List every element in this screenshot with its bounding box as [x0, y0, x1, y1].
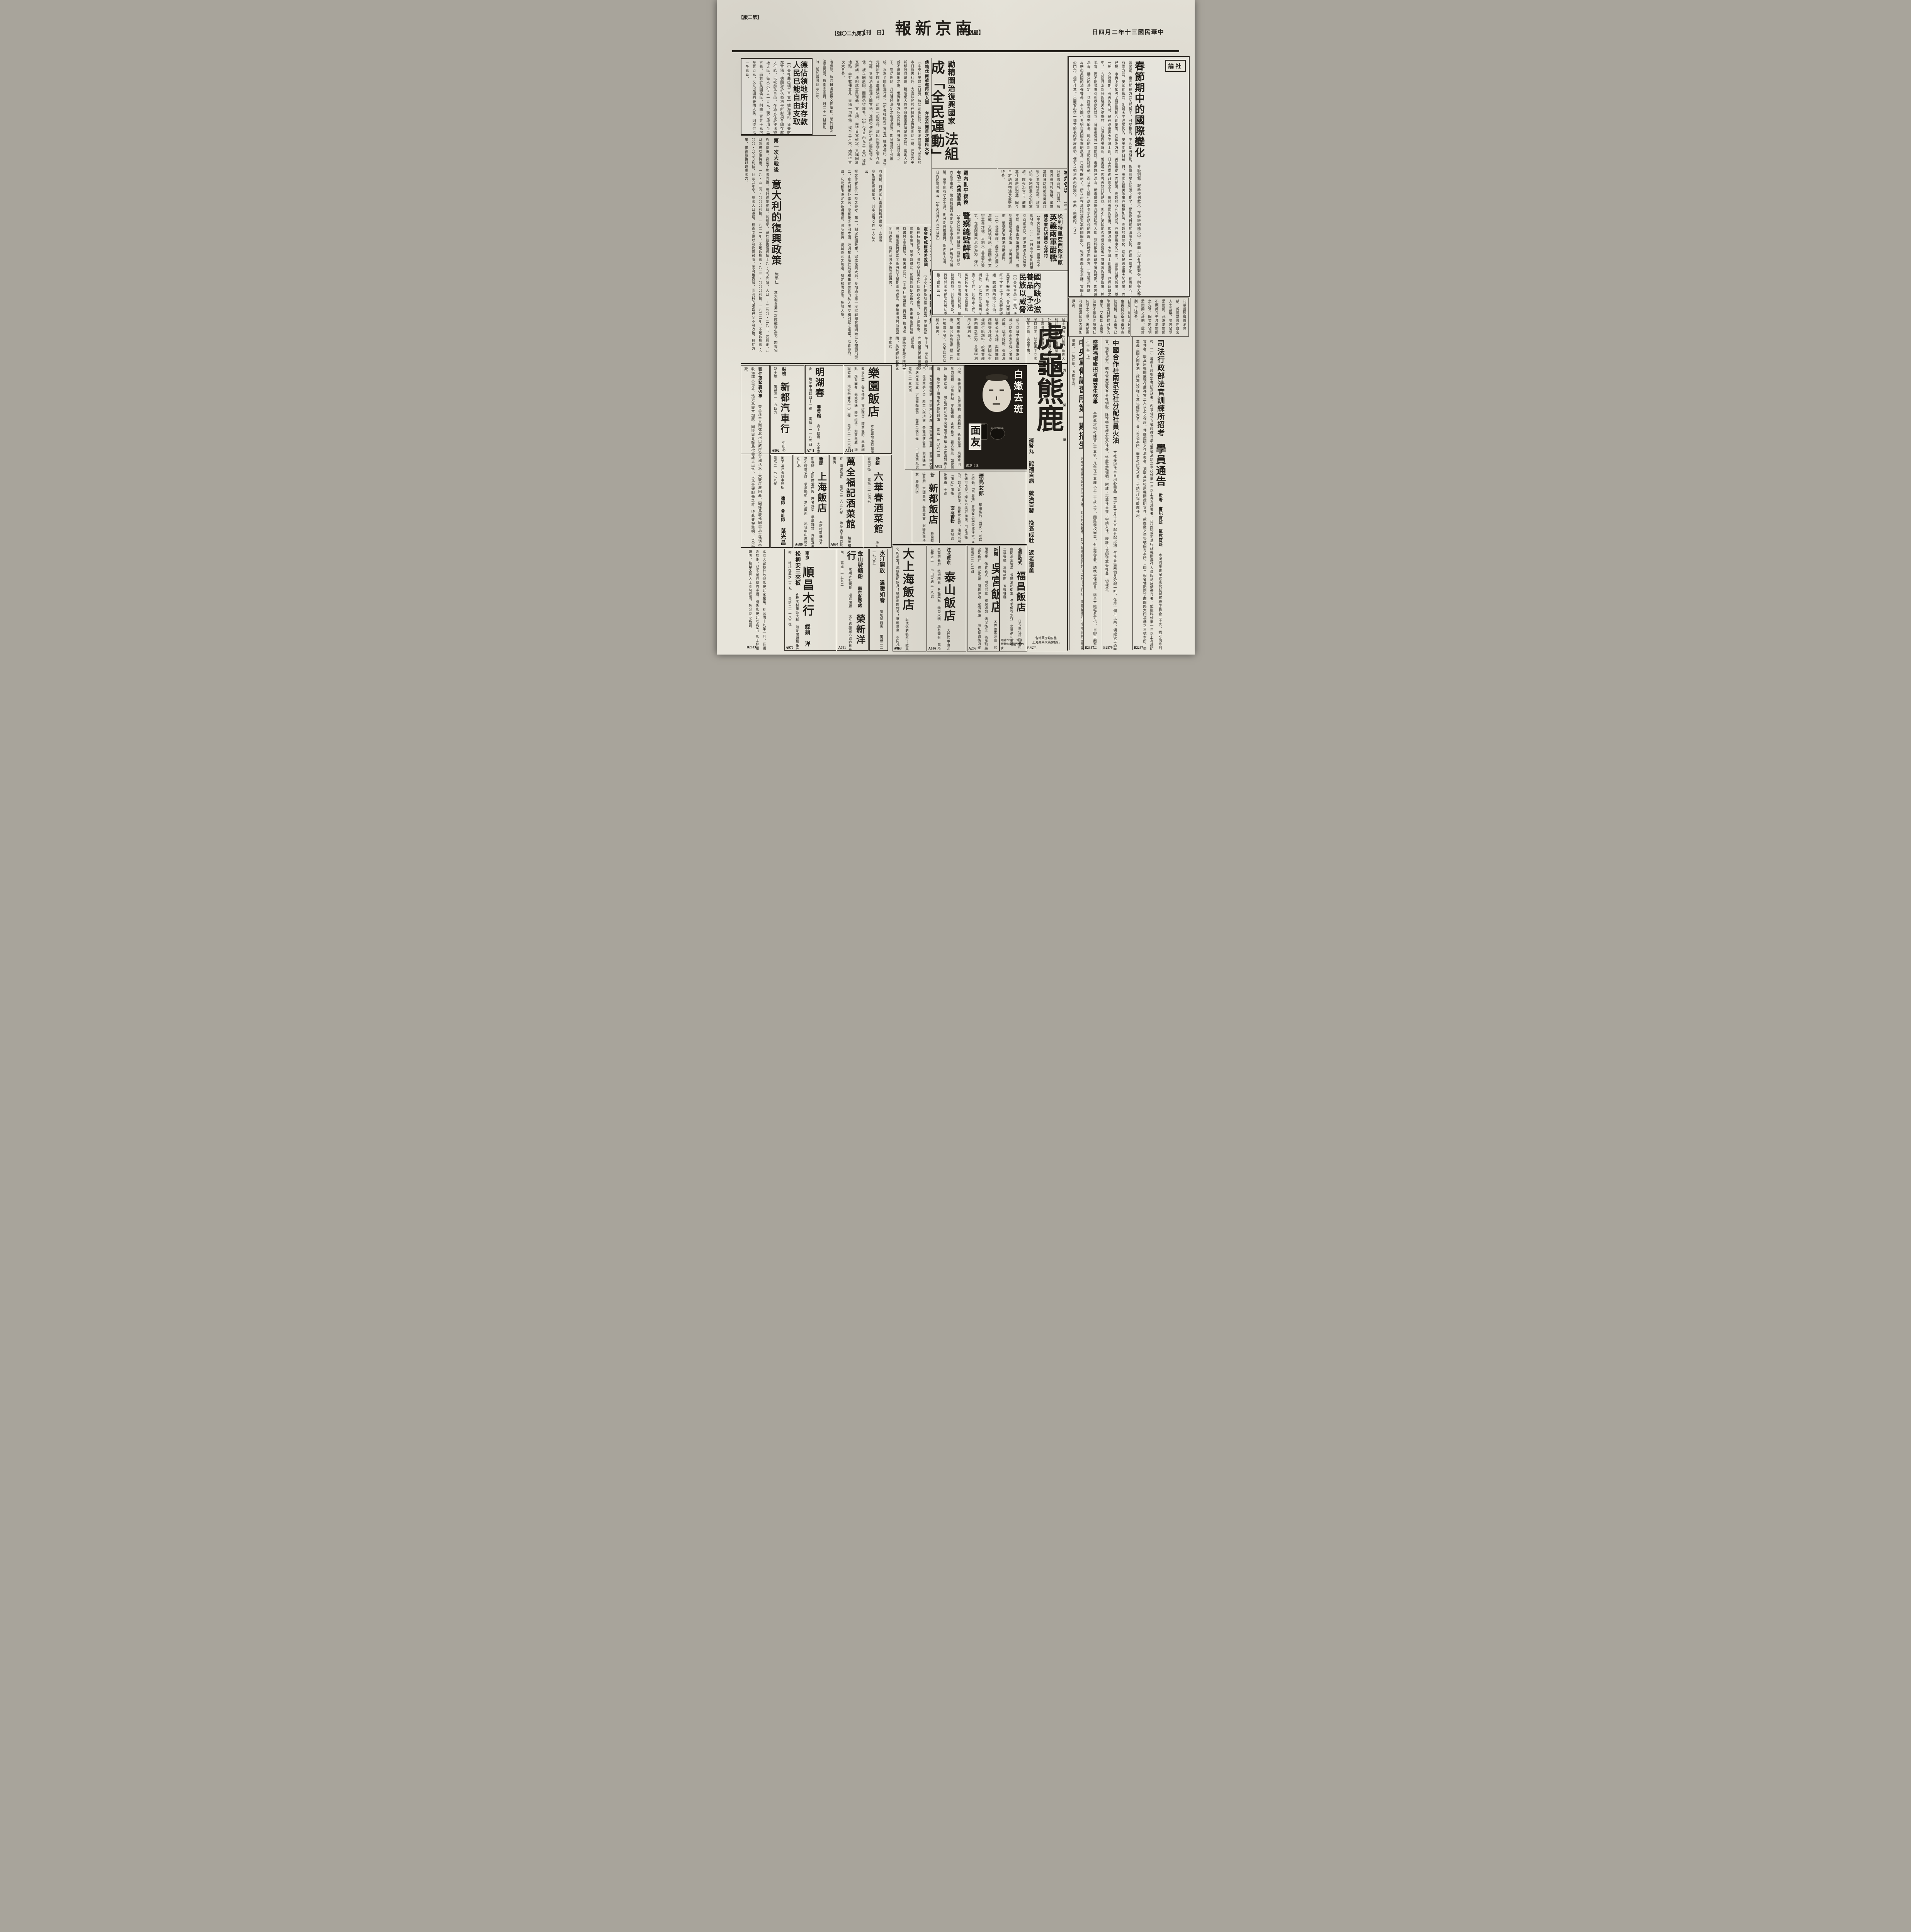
article-donovan: 美特使鄧洛文 留土京候晤總統 霍金斯威爾基將返國 【中央社伊斯坦堡三日電】美總統…: [886, 225, 931, 334]
feature-body2: 撰文作者並供一時之參考、第一、制定救國政策、完成復興大局、參加過之第一次歐戰和食…: [840, 170, 858, 363]
ad-body: 本京大當巷廿七號馬慶延家產業、於民國十九年一月、巨測收款後、延不履行期約手續、關…: [748, 550, 766, 650]
ad-phone: 電話二三〇六一號: [937, 428, 940, 457]
ad-code: A970: [786, 646, 794, 650]
article-title: 德佔領地所封存款: [799, 61, 808, 126]
article-body: 【中央社瑞士京城三日電】據義大利駐外使館鄭重否認稱、外報所稱熱那亞港、西地中海將…: [1027, 318, 1067, 362]
ad-phone: 電話二二九二四: [971, 548, 974, 573]
face-ad-agent: 南京代理: [966, 463, 979, 468]
daily-label: 【刊 日】: [860, 29, 887, 36]
ad-name: 泰山飯店: [942, 571, 955, 622]
tiger-char-xiong: 熊: [1035, 379, 1066, 406]
article-body: 【中央社瑞士京城三日電】據瑞士最高軍事長官谷桑將軍發表談話稱、瑞士軍隊已準備應付…: [1072, 299, 1130, 334]
ad-details: 常期大批現貨 迎歡賜顧: [848, 568, 852, 608]
divider: [885, 168, 885, 363]
ad-name: 明湖春: [814, 367, 824, 398]
divider: [932, 58, 932, 362]
woman-face-illustration: [983, 376, 1011, 412]
article-body: 【中央社紐約三日電】據昨晚「紐約詢報」刊華盛頓傳來消息稱、威爾基曾向白宮人士宣稱…: [1134, 299, 1189, 337]
notice-title: 中央宣傳講習所第一期招生: [1078, 339, 1083, 450]
ad-code: A694: [831, 543, 838, 546]
ad-phone: 電話三一一九四九: [774, 385, 778, 414]
ad-code: B2257: [1134, 646, 1143, 650]
ad-heating: 水汀開放 溫暖如春 地址慧圓街 電話二二一七〇五: [869, 549, 888, 651]
article-france-movement: 勵精圖治復興國家 法組成「全民運動」 傳賴伐爾被邀再度入閣 幷將召開首次國民大會…: [837, 58, 1068, 165]
ad-fuchang-hotel: 全部歐式 福昌飯店 日金單位法幣通用 房間浴室清潔 餐廳酒吧衛生 冬季備有水汀 …: [1000, 546, 1027, 651]
tiger-footer: 各埠藥房均有售 上海美藥大藥房發行: [1027, 636, 1066, 645]
ad-property-notice: 本京大當巷廿七號馬慶延家產業、於民國十九年一月、巨測收款後、延不履行期約手續、關…: [746, 549, 768, 650]
ad-phone: 電話二一一八五四: [809, 417, 813, 446]
ad-code: A524: [845, 449, 853, 452]
ad-code: A680: [795, 543, 803, 546]
article-german-funds: 德佔領地所封存款 人民已能自由支取 【中央社華盛頓三日電】據海通訊、據美財部宣稱…: [741, 58, 813, 135]
ad-address: 地址中山路四十一號: [809, 378, 813, 411]
tiger-dealer-line: 各埠藥房均有售: [1027, 636, 1066, 640]
article-body: 【中央社紐約三日電】「紐約泰晤士報」載稱、美澳新西蘭間、似已成立以日本南進政策爲…: [967, 318, 1023, 361]
ad-label: 全部歐式: [1018, 548, 1022, 565]
ad-label: 新開: [819, 457, 823, 465]
ad-name: 上海飯店: [816, 472, 826, 514]
newspaper-page: 【版二第】 【號〇二九第】 【刊 日】 報新京南 【二期星】 日四月二年十三國民…: [717, 0, 1195, 655]
ad-code: B2633: [747, 645, 756, 649]
weekday-label: 【二期星】: [957, 29, 984, 36]
article-subtitle2: 幷將召開首次國民大會: [925, 111, 929, 156]
date-label: 日四月二年十三國民華中: [1092, 28, 1165, 36]
ad-product: 金山牌麵粉: [857, 551, 863, 580]
ad-code: A741: [807, 449, 814, 452]
tiger-slogan: 挽衰成壯: [1028, 520, 1034, 543]
ad-place: 南京批發處: [857, 586, 862, 607]
feature-author: 施學仁: [774, 272, 778, 284]
ad-address: 地址朱雀路一〇三號: [847, 385, 851, 418]
article-body: 【中央社伊斯坦堡三日電】美總統羅斯福特使鄧洛文、將於今日與土外長作首次會談、及土…: [889, 227, 927, 334]
notice-hat-factory: 盛錫福帽廠招考練習生啓事 本廠此次招考練習生十五名、凡年在十五歲以上二十歲以下、…: [1083, 337, 1101, 650]
article-eritrea-battle: 埃利特里亞西部平原 英義兩軍酣戰 傳英軍已佔據亞戈達特 【中央社羅馬三日電】義軍…: [964, 212, 1067, 269]
ad-phone: 電話二一二六四: [847, 424, 851, 450]
ad-name: 大上海飯店: [901, 548, 914, 611]
ad-liuhuachun: 浙紹 六華春酒菜館 地址貢院東街 電話二一七四七: [864, 455, 892, 548]
ad-address: 中山路四九號: [915, 447, 919, 469]
notice-propaganda-institute: 中央宣傳講習所第一期招生 凡中學畢業或具有同等學力者、均可報名投考、報名日期自卽…: [1069, 337, 1083, 650]
ad-address: 中山東路三二八號: [930, 569, 934, 598]
ad-dashanghai-hotel: 大上海飯店 近代化的裝飾！歐美化的浴堂！流線型的傢具！練訓過的侍者！華麗畓皇 不…: [893, 546, 927, 651]
ad-firm: 衡平法律會計事務所: [781, 456, 785, 490]
ad-title: 張仲䓬緊要啓事: [758, 367, 762, 398]
ad-roles: 律師 會計師: [780, 496, 785, 522]
ad-lawyer-accountant: 衡平法律會計事務所 律師 會計師 葉光昌 電話二一七七九號: [770, 455, 793, 548]
article-willkie-visit: 威爾基訪視 英被炸各城 【中央社瑞典京城三日電】據得自倫敦報告稱、威爾基昨日訪視…: [998, 168, 1067, 210]
article-nutrition-shortage: 國內缺少滋養品 予法民族以威脅 【中央社里昂二日電】法某著名醫學家、曾向美國紅十…: [932, 270, 1068, 315]
divider: [741, 363, 1067, 364]
tiger-slogan: 返老還童: [1028, 550, 1034, 573]
ad-code: A802: [772, 449, 780, 452]
ad-xindou-garage: 鼓樓 新都汽車行 中山北路十號 電話三一一九四九 A802: [770, 365, 804, 454]
ad-houdefu: 北京分此 厚德福 酒樓 敝樓特點 經濟小吃 味美價廉 眞正塡鴨 維新和菜 珍貴筵…: [933, 365, 964, 469]
ad-phone: 電話二一一八三號: [788, 597, 792, 627]
ad-phone: 電話二一七七九號: [774, 456, 777, 486]
ad-shunchang-lumber: 南京 順昌木行 經銷 洋松柳安三夾板 各種木材建築大料 如蒙賜顧無任歡迎 地址復…: [784, 549, 836, 651]
article-body: 【中央社華盛頓三日電】據海通訊、據美財部宣稱、德國對於佔領地帶所封鎖各國存款之付…: [745, 61, 791, 134]
ad-name: 新都飯店: [927, 483, 937, 525]
divider: [1068, 56, 1068, 650]
ad-address: 地址慧園街四號: [978, 624, 981, 650]
tiger-slogan: 統治百發: [1028, 490, 1034, 514]
ad-name: 福昌飯店: [1015, 571, 1025, 613]
ad-label: 鼓樓: [782, 367, 786, 376]
article-subtitle: 傳賴伐爾被邀再度入閣: [925, 60, 929, 105]
article-subtitle: 霍金斯威爾基將返國: [923, 227, 928, 267]
ad-label: 新開: [993, 548, 998, 556]
ad-face-friend-text: 漂亮女郎 都用搽的「面友」、以其之特長。「白裏仙」專除雀斑與吸收偉大。非普通可比…: [940, 471, 1027, 543]
article-subtitle: 傳英軍已佔據亞戈達特: [1044, 214, 1048, 258]
tiger-slogans: 補腎丸 能補百病 統治百發 挽衰成壯 返老還童: [1027, 438, 1035, 585]
divider: [741, 548, 891, 548]
ad-face-friend: 白嫩去斑 FACE FRIEND FACE FRIEND 面友 南京代理: [964, 365, 1027, 469]
ad-address: 地址夫子廟南京大戲院對面: [937, 378, 940, 422]
ad-wanquan-restaurant: 萬全福記酒菜館 精美禮券 贈送最宜 電話二三六五八號 地址夫子廟貢院東街 A69…: [829, 455, 863, 548]
feature-title: 意大利的復興政策: [770, 179, 782, 266]
article-body: 【中央社里昂二日電】法某著名醫學家、曾向美國紅十字會工作人員發表談話、略謂國內缺…: [937, 273, 1017, 315]
ad-name: 新都汽車行: [779, 382, 789, 434]
ad-code: B2879: [1103, 646, 1113, 650]
article-subtitle: 有功士兵感獲重獎: [957, 170, 961, 206]
article-body: 【中央社瑞典京城三日電】據英國廣播公司宣稱、英吉利海峽及英格蘭南岸、發生激烈空戰…: [935, 318, 963, 362]
feature-kicker: 第一次大戰後: [773, 138, 779, 173]
article-body: 【中央社瑞典京城三日電】據得自倫敦報告稱、威爾基昨日訪視被德機轟炸後之戈文特里城…: [1001, 170, 1067, 210]
edition-label: 【版二第】: [739, 14, 762, 20]
ad-code: A791: [838, 646, 846, 650]
ad-wugong-hotel: 新開 吳宮飯店 各界旅客注意 房間優美 佈置新式 附設浴室 禮貌週到 清潔衛生 …: [967, 546, 1000, 651]
ad-shanghai-hotel-new: 新開 上海飯店 本店特聘蘇錫名廚專辦 高尚席堂佳製 著名錫菜 早晨麵點 喜慶宴會…: [794, 455, 828, 548]
ad-code: B2575: [1027, 646, 1037, 650]
article-whitehouse-ireland: 白宮人士盛傳 英將佔愛爾蘭 【中央社紐約三日電】據昨晚「紐約詢報」刊華盛頓傳來消…: [1131, 298, 1189, 337]
ad-name: 樂園飯店: [866, 367, 879, 418]
ad-phone: 電話二三六五八號: [840, 485, 843, 515]
ad-phone: 電話二一七四七: [867, 478, 871, 504]
ad-code: A802: [935, 464, 942, 468]
ad-code: A636: [928, 646, 936, 650]
ad-line2: 溫暖如春: [879, 580, 885, 603]
divider: [893, 544, 1027, 545]
ad-address: 南京中山路五十七號: [1001, 642, 1026, 650]
article-kicker: 美特使鄧洛文: [930, 227, 931, 262]
ad-label: 注北意京: [946, 548, 951, 565]
ad-type: 粵菜館: [816, 405, 821, 418]
article-title: 留土京候晤總統: [928, 268, 931, 325]
ad-code: A763: [894, 646, 902, 650]
article-body: 【中央社里昂二日電】據哈瓦斯社訊、法某消息靈通方面頃於本日發表社評、力言法民族在…: [841, 60, 921, 165]
ad-rongxin-flour: 金山牌麵粉 南京批發處 榮新洋行 常期大批現貨 迎歡賜顧 太平路緯里六號春日莊內…: [837, 549, 869, 651]
ad-name: 吳宮飯店: [990, 563, 1000, 614]
article-denmark-party: 丹國社黨 黨徒增多 【中央社丹麥京城三日電】丹麥國社黨昨向丹麥政府宣稱、丹麥國社…: [862, 168, 884, 241]
notice-title2: 學員通告: [1155, 444, 1166, 487]
editorial-title: 春節期中的國際變化: [1134, 61, 1145, 158]
wire-text: 海通訊、據昨日法報撰文佈論稱、關於首次法國民議、鉄衛團團員、月二十一日暴動時、前…: [816, 60, 833, 133]
ad-address: 地址復興路一三九: [788, 561, 792, 591]
article-genoa-denial: 義方鄭重否認 封閉熱那亞港 【中央社瑞士京城三日電】據義大利駐外使館鄭重否認稱、…: [1024, 316, 1067, 362]
ad-phone: 電話二一三六四: [908, 367, 912, 393]
tiger-char-lu: 鹿: [1035, 406, 1066, 434]
ad-title: 漂亮女郎: [978, 473, 984, 497]
ad-address: 地址慧圓街: [880, 610, 884, 628]
ad-label: 浙紹: [875, 457, 880, 465]
ad-phone: 電話二一五九二: [840, 561, 844, 587]
ad-xindou-hotel: 新 新都飯店 特聘超等名廚 烹調高尚 各界宴會 婀娜蘇滬侍女 殷勤招待: [912, 471, 940, 543]
jar-label: FACE FRIEND: [991, 428, 1004, 430]
ad-label: 新: [930, 473, 935, 477]
article-title2: 人民已能自由支取: [792, 61, 800, 126]
ad-name: 葉光昌: [780, 528, 786, 546]
tiger-inset-hua: 華: [1063, 438, 1066, 442]
ad-minghuchun: 明湖春 粵菜館 高上筵席 大小宴會 地址中山路四十一號 電話二一一八五四 A74…: [805, 365, 843, 454]
ad-name: 六華春酒菜館: [872, 472, 882, 534]
ad-leyuan-hotel: 樂園飯店 本社專辦應時筵席 改良和菜 各省佳餚 零折碗菜 隨意便酌 早晨細點 應…: [844, 365, 892, 454]
editorial-box: 論社 春節期中的國際變化 春節例假、報紙停刊數天、在短短的幾天中、表面上沒有什麼…: [1068, 56, 1190, 297]
ad-place: 南京: [805, 551, 809, 560]
notice-roles: 監考 書記官班 監獄官班: [1158, 493, 1163, 547]
ad-taishan-hotel: 注北意京 泰山飯店 大行宮中由北京聘來名廚 技術精良 各種菜點 精益求精 應有盡…: [927, 546, 966, 651]
article-kicker: 埃利特里亞西部平原: [1057, 214, 1063, 266]
article-kicker: 勵精圖治復興國家: [947, 60, 955, 125]
editorial-section-label: 論社: [1165, 60, 1185, 72]
ad-line1: 水汀開放: [879, 550, 885, 573]
notice-title: 盛錫福帽廠招考練習生啓事: [1092, 340, 1098, 405]
ad-details: 房間浴室清潔 餐廳酒吧衛生 冬季備有水汀 交通便利適中 二樓餐廳 三樓旅館 五樓…: [1003, 548, 1014, 650]
tiger-issuer-line: 上海美藥大藥房發行: [1027, 640, 1066, 645]
ad-name: 順昌木行: [801, 566, 814, 617]
article-body: 【中央社羅馬三日電】義軍司令部發表、（一）一日東非埃利特里亞西部平原、阿戈爾達多…: [967, 214, 1041, 269]
feature-italy-recovery: 第一次大戰後 意大利的復興政策 施學仁 意大利自第一次歐戰發生後、卽與協約國聯絡…: [741, 135, 836, 352]
article-pacific-accord: 共同防衛南太平洋 美澳新已成立諒解 【中央社紐約三日電】「紐約泰晤士報」載稱、美…: [964, 316, 1023, 362]
ad-code: A256: [969, 646, 976, 650]
article-title: 英義兩軍酣戰: [1049, 214, 1057, 262]
tiger-inset-rong: 榮: [1063, 403, 1066, 407]
editorial-body: 春節例假、報紙停刊數天、在短短的幾天中、表面上沒有什麼緊張、則各方都非常緊張、重…: [1073, 61, 1141, 297]
ad-tiger-tonic: 虎 龜 熊 鹿 富 貴 榮 華 補腎丸 能補百病 統治百發 挽衰成壯 返老還童 …: [1026, 321, 1068, 651]
article-swiss-defense: 谷桑將軍表明 瑞士國防雄厚 【中央社瑞士京城三日電】據瑞士最高軍事長官谷桑將軍發…: [1068, 298, 1130, 337]
article-air-battle: 英領空又有猛戰 【中央社瑞典京城三日電】據英國廣播公司宣稱、英吉利海峽及英格蘭南…: [932, 316, 963, 362]
tiger-slogan: 能補百病: [1028, 461, 1034, 484]
notice-coop-kerosene: 中國合作社南京支社分配社員火油 本社專辦社員日用必需品、茲定於本月十八日起分配火…: [1102, 337, 1132, 650]
divider: [741, 454, 891, 454]
face-ad-headline: 白嫩去斑: [1012, 369, 1022, 416]
face-ad-brand: 面友: [969, 423, 981, 450]
article-body: 【中央社丹麥京城三日電】丹麥國社黨昨向丹麥政府宣稱、丹麥國社黨黨徒現已增多、去歲…: [865, 170, 884, 241]
notice-title: 司法行政部法官訓練所招考: [1156, 340, 1165, 437]
ad-sub: 面友香粉: [950, 506, 955, 523]
masthead-rule: [732, 50, 1179, 52]
ad-name: 萬全福記酒菜館: [845, 457, 855, 530]
ad-zhang-notice: 張仲䓬緊要啓事 查坐落本京西郊北河口對岸永定洲活水十六號房屋田產、間經馬慶延同弟…: [741, 365, 770, 548]
tiger-inset-gui: 貴: [1063, 368, 1066, 372]
notice-title: 中國合作社南京支社分配社員火油: [1112, 340, 1119, 444]
article-kicker: 羅內亂平復後: [963, 170, 969, 205]
ad-shuangye-fujian: 双葉閩菜社 閩菜首都獨一 極備福建風味 常有各種海鮮 定辦大小酒席 藉資宣傳營業…: [905, 365, 933, 469]
wire-column: 海通訊、據昨日法報撰文佈論稱、關於首次法國民議、鉄衛團團員、月二十一日暴動時、前…: [813, 58, 835, 133]
tiger-pill-name: 補腎丸: [1028, 438, 1034, 454]
ad-name: 厚德福: [962, 391, 964, 422]
notice-judicial-training: 司法行政部法官訓練所招考 學員通告 監考 書記官班 監獄官班 本所招考書記官班及…: [1132, 337, 1188, 650]
ad-code: B2357: [1085, 646, 1094, 650]
